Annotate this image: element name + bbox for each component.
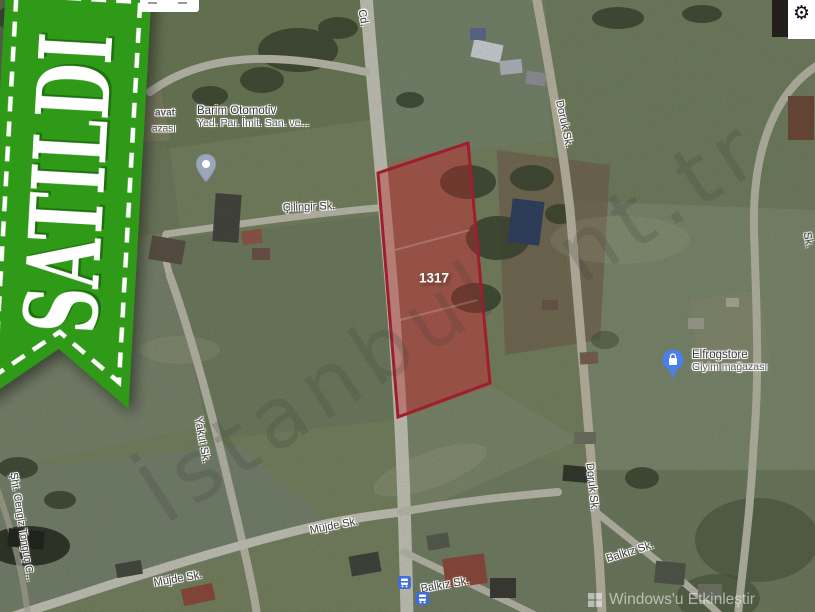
windows-activation-overlay: Windows'u Etkinleştir [588, 591, 755, 609]
place-name: Elfrogstore [692, 349, 767, 361]
gray-teardrop-pin[interactable] [196, 154, 216, 182]
sold-text: SATILDI [2, 30, 136, 336]
gear-icon: ⚙ [793, 2, 810, 24]
windows-activation-text: Windows'u Etkinleştir [609, 591, 755, 609]
bus-stop-icon[interactable] [398, 576, 411, 589]
bus-stop-icon[interactable] [416, 592, 429, 605]
sold-ribbon: SATILDI SATILDI [0, 0, 156, 418]
windows-logo-icon [588, 593, 602, 607]
partial-place-label-line2: azası [152, 124, 176, 135]
partial-place-label-line1: avat [155, 108, 175, 119]
place-name: Barim Otomotiv [197, 105, 309, 117]
place-detail: Giyim mağazası [692, 361, 767, 373]
map-control-remnant [140, 0, 199, 12]
blue-shopping-pin[interactable] [662, 349, 684, 380]
parcel-number-label: 1317 [419, 271, 449, 286]
place-elfrogstore[interactable]: Elfrogstore Giyim mağazası [692, 349, 767, 373]
settings-button[interactable]: ⚙ [788, 0, 815, 39]
street-label-cilingir: Çilingir Sk. [283, 200, 336, 214]
place-barim-otomotiv[interactable]: Barim Otomotiv Yed. Par. İmlt. San. ve..… [197, 105, 309, 129]
place-detail: Yed. Par. İmlt. San. ve... [197, 117, 309, 129]
listing-image: Cd. Çilingir Sk. Doruk Sk. Doruk Sk. Yak… [0, 0, 815, 612]
street-label-edge-fragment: Sk. [801, 231, 815, 249]
